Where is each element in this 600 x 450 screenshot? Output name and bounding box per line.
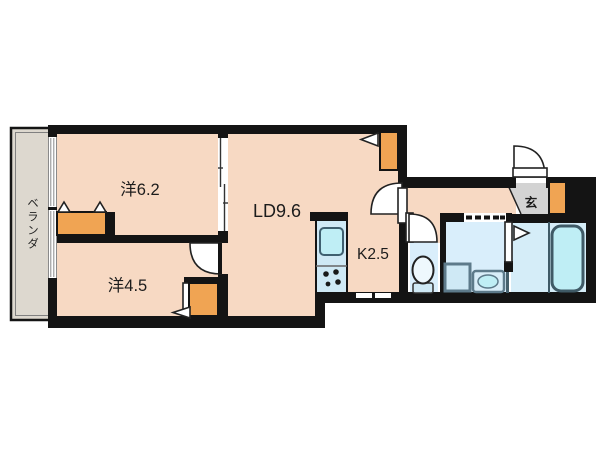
door-leaf-bedroom-4-5 xyxy=(218,243,222,274)
closet-living xyxy=(380,132,398,170)
wall xyxy=(507,214,596,223)
room-label-entrance: 玄 xyxy=(517,192,545,211)
stove-burner-icon xyxy=(326,282,331,287)
window xyxy=(49,137,57,207)
door-leaf-bath xyxy=(505,222,512,262)
window xyxy=(49,210,57,278)
shoe-cabinet xyxy=(549,182,566,214)
room-label-bedroom-4-5: 洋4.5 xyxy=(85,272,170,296)
hatch-dash xyxy=(356,293,372,298)
stove-burner-icon xyxy=(335,279,341,285)
veranda-label: ベランダ xyxy=(24,197,40,251)
wall xyxy=(398,125,407,189)
stove-burner-icon xyxy=(323,271,329,277)
room-label-bedroom-6-2: 洋6.2 xyxy=(100,176,180,200)
washbasin-icon xyxy=(473,271,504,292)
bath-divider-line xyxy=(548,222,550,293)
outside-patch xyxy=(325,303,415,325)
closet-bedroom-6-2 xyxy=(57,212,106,235)
closet-bedroom-4-5 xyxy=(189,283,218,316)
floorplan-canvas: ベランダ 洋6.2 LD9.6 洋4.5 K2.5 玄 xyxy=(0,0,600,450)
room-label-living-dining: LD9.6 xyxy=(232,201,322,222)
room-label-kitchen: K2.5 xyxy=(338,246,408,264)
folding-door-dash xyxy=(500,216,505,220)
wall xyxy=(106,212,115,243)
door-leaf-entrance xyxy=(513,168,547,177)
sliding-door-gap xyxy=(218,138,228,231)
wall xyxy=(398,177,516,188)
wall xyxy=(48,235,228,243)
toilet-icon xyxy=(413,257,434,294)
wall xyxy=(48,316,325,328)
folding-door-dash xyxy=(493,216,499,220)
toilet-bowl xyxy=(413,257,434,284)
bathtub-icon xyxy=(552,226,583,291)
hatch-dash xyxy=(375,293,391,298)
sliding-door-partition xyxy=(218,138,228,231)
folding-door-dash xyxy=(484,216,490,220)
floorplan-drawing xyxy=(0,0,600,450)
wall xyxy=(218,125,228,138)
wall xyxy=(218,231,228,243)
bath-partition-line xyxy=(506,272,509,293)
folding-door-dash xyxy=(466,216,472,220)
washbasin-bowl xyxy=(478,275,498,288)
stove-burner-icon xyxy=(333,269,339,275)
folding-door-dash xyxy=(475,216,481,220)
wall xyxy=(564,177,596,217)
washer-space-icon xyxy=(445,264,470,291)
